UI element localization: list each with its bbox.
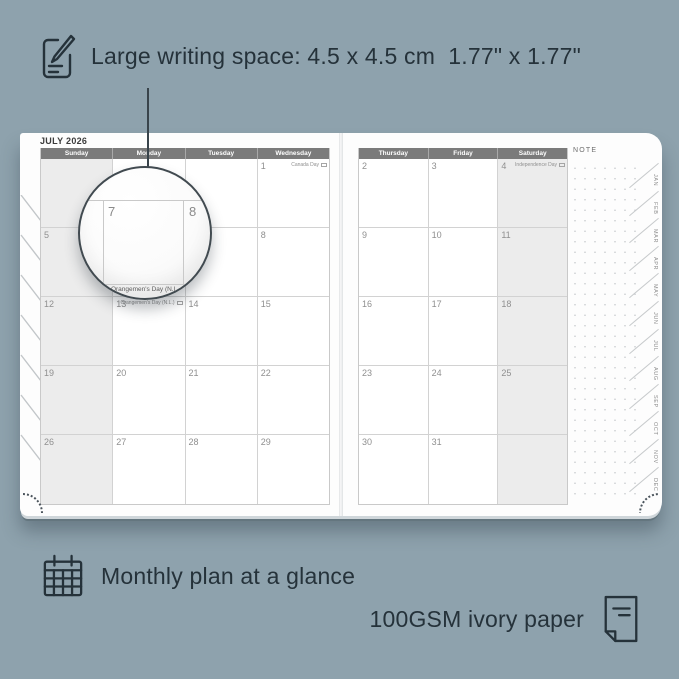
day-cell-27: 27 (113, 435, 185, 504)
month-tab-label: DEC (652, 478, 658, 491)
week-row: 161718 (359, 297, 567, 366)
corner-stitch-bottom-left (3, 493, 43, 533)
day-cell-25: 25 (498, 366, 567, 435)
holiday-flag-icon (321, 163, 327, 168)
month-tab-may: MAY (628, 273, 662, 301)
page-spine (339, 133, 343, 516)
day-header-saturday: Saturday (498, 148, 567, 159)
day-number: 9 (362, 230, 367, 240)
day-number: 28 (189, 437, 199, 447)
product-image: Large writing space: 4.5 x 4.5 cm 1.77" … (0, 0, 679, 679)
left-page-tab-edges (20, 195, 42, 495)
week-row: 232425 (359, 366, 567, 435)
month-tab-mar: MAR (628, 218, 662, 246)
day-cell-28: 28 (186, 435, 258, 504)
week-row: 26272829 (41, 435, 329, 504)
calendar-grid-icon (42, 553, 84, 599)
magnified-grid-line (183, 200, 184, 284)
holiday-label: Canada Day (291, 162, 327, 168)
month-tab-feb: FEB (628, 191, 662, 219)
month-title: JULY 2026 (40, 136, 87, 146)
day-number: 5 (44, 230, 49, 240)
day-header-row: ThursdayFridaySaturday (359, 148, 567, 159)
magnified-day-number: 8 (189, 204, 196, 219)
day-number: 21 (189, 368, 199, 378)
day-number: 20 (116, 368, 126, 378)
day-cell-16: 16 (359, 297, 429, 366)
day-number: 17 (432, 299, 442, 309)
day-number: 26 (44, 437, 54, 447)
day-number: 10 (432, 230, 442, 240)
day-cell-1: 1Canada Day (258, 159, 329, 228)
day-number: 11 (501, 230, 510, 240)
day-number: 15 (261, 299, 271, 309)
magnified-grid-line (80, 284, 210, 285)
day-number: 14 (189, 299, 199, 309)
week-row: 19202122 (41, 366, 329, 435)
day-number: 3 (432, 161, 437, 171)
month-tab-jun: JUN (628, 301, 662, 329)
magnified-holiday-label: Orangemen's Day (N.L. (80, 286, 210, 293)
month-tab-label: OCT (652, 422, 658, 435)
day-cell-17: 17 (429, 297, 499, 366)
day-number: 31 (432, 437, 442, 447)
week-row: 91011 (359, 228, 567, 297)
top-annotation: Large writing space: 4.5 x 4.5 cm 1.77" … (40, 33, 581, 80)
day-cell-26: 26 (41, 435, 113, 504)
day-number: 23 (362, 368, 372, 378)
month-tab-label: MAY (652, 284, 658, 297)
day-cell (498, 435, 567, 504)
day-number: 19 (44, 368, 54, 378)
month-tab-label: JAN (652, 174, 658, 186)
month-tab-aug: AUG (628, 356, 662, 384)
bottom-left-annotation-text: Monthly plan at a glance (101, 563, 355, 590)
month-tab-label: JUL (652, 340, 658, 352)
top-annotation-text: Large writing space: 4.5 x 4.5 cm 1.77" … (91, 43, 581, 70)
week-row: 3031 (359, 435, 567, 504)
day-cell-2: 2 (359, 159, 429, 228)
day-number: 1 (261, 161, 266, 171)
day-header-wednesday: Wednesday (258, 148, 329, 159)
month-tab-dec: DEC (628, 467, 662, 495)
day-cell-9: 9 (359, 228, 429, 297)
day-cell-24: 24 (429, 366, 499, 435)
day-cell-12: 12 (41, 297, 113, 366)
day-number: 27 (116, 437, 126, 447)
holiday-flag-icon (177, 301, 183, 306)
day-cell-22: 22 (258, 366, 329, 435)
day-number: 16 (362, 299, 372, 309)
day-number: 8 (261, 230, 266, 240)
day-cell-19: 19 (41, 366, 113, 435)
magnified-grid-line (80, 200, 210, 201)
corner-stitch-bottom-right (639, 493, 679, 533)
day-cell-11: 11 (498, 228, 567, 297)
day-header-row: SundayMondayTuesdayWednesday (41, 148, 329, 159)
month-tab-label: FEB (652, 202, 658, 215)
day-number: 12 (44, 299, 54, 309)
day-cell-21: 21 (186, 366, 258, 435)
day-cell-13: 13Orangemen's Day (N.L.) (113, 297, 185, 366)
day-number: 4 (501, 161, 506, 171)
month-tab-jan: JAN (628, 163, 662, 191)
day-number: 18 (501, 299, 511, 309)
holiday-flag-icon (559, 163, 565, 168)
bottom-left-annotation: Monthly plan at a glance (42, 553, 355, 599)
day-cell-10: 10 (429, 228, 499, 297)
bottom-right-annotation-text: 100GSM ivory paper (369, 606, 584, 633)
week-row: 234Independence Day (359, 159, 567, 228)
day-header-thursday: Thursday (359, 148, 429, 159)
day-header-sunday: Sunday (41, 148, 113, 159)
month-tab-nov: NOV (628, 439, 662, 467)
day-number: 24 (432, 368, 442, 378)
holiday-label: Orangemen's Day (N.L.) (120, 300, 182, 306)
callout-line (147, 88, 149, 170)
day-number: 22 (261, 368, 271, 378)
note-label: NOTE (573, 147, 597, 154)
day-cell-8: 8 (258, 228, 329, 297)
magnifier-circle: 7 8 Orangemen's Day (N.L. (78, 166, 212, 300)
day-cell-15: 15 (258, 297, 329, 366)
day-cell-14: 14 (186, 297, 258, 366)
magnified-grid-line (103, 200, 104, 284)
day-number: 29 (261, 437, 271, 447)
day-cell-30: 30 (359, 435, 429, 504)
month-tab-label: AUG (652, 367, 658, 381)
day-cell-3: 3 (429, 159, 499, 228)
month-tab-apr: APR (628, 246, 662, 274)
bottom-right-annotation: 100GSM ivory paper (369, 594, 642, 644)
day-number: 25 (501, 368, 511, 378)
month-tab-label: APR (652, 257, 658, 270)
month-tab-oct: OCT (628, 411, 662, 439)
day-cell-20: 20 (113, 366, 185, 435)
day-number: 2 (362, 161, 367, 171)
pencil-note-icon (40, 33, 76, 80)
month-tab-label: MAR (652, 229, 658, 243)
holiday-label: Independence Day (515, 162, 565, 168)
day-cell-4: 4Independence Day (498, 159, 567, 228)
month-tab-jul: JUL (628, 329, 662, 357)
day-header-friday: Friday (429, 148, 499, 159)
day-header-tuesday: Tuesday (186, 148, 258, 159)
day-number: 30 (362, 437, 372, 447)
month-tab-label: NOV (652, 450, 658, 464)
week-row: 1213Orangemen's Day (N.L.)1415 (41, 297, 329, 366)
month-tab-sep: SEP (628, 384, 662, 412)
month-tab-label: JUN (652, 312, 658, 325)
day-cell-18: 18 (498, 297, 567, 366)
day-cell-31: 31 (429, 435, 499, 504)
magnified-day-number: 7 (108, 204, 115, 219)
month-tabs: JANFEBMARAPRMAYJUNJULAUGSEPOCTNOVDEC (628, 163, 662, 495)
day-header-monday: Monday (113, 148, 185, 159)
month-tab-label: SEP (652, 395, 658, 408)
day-cell-23: 23 (359, 366, 429, 435)
day-cell-29: 29 (258, 435, 329, 504)
right-page-grid: ThursdayFridaySaturday234Independence Da… (358, 148, 568, 505)
paper-sheet-icon (600, 594, 642, 644)
